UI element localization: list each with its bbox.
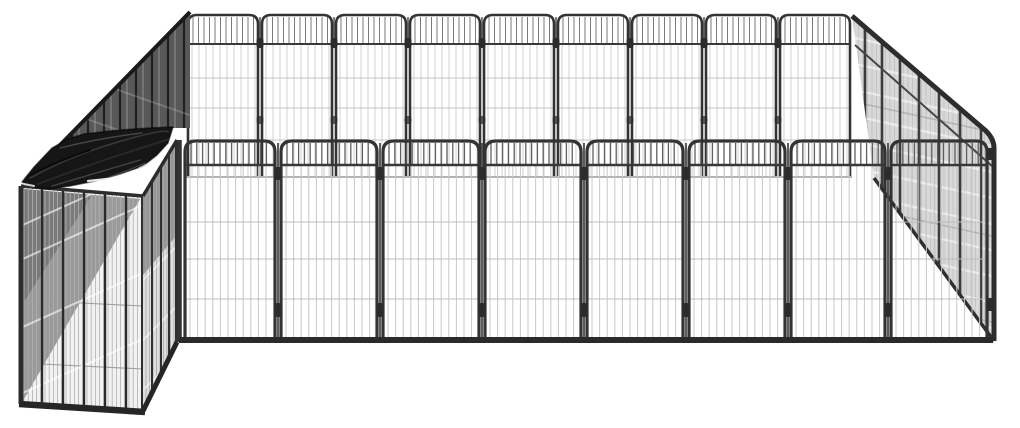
product-photo bbox=[0, 0, 1020, 428]
dog-playpen-illustration bbox=[0, 0, 1020, 428]
